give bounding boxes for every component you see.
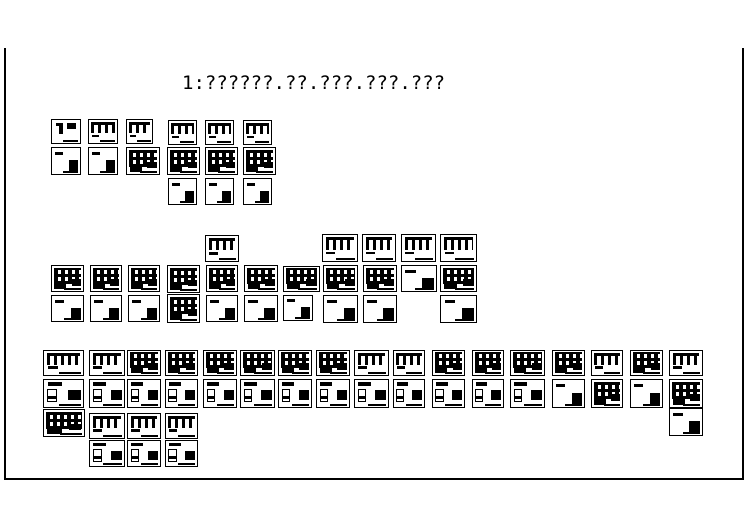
thumb-mark — [209, 183, 217, 186]
thumb-mark — [207, 368, 219, 373]
thumb-mark — [93, 382, 106, 386]
thumb-mark — [422, 278, 433, 288]
thumb-mark — [492, 363, 501, 369]
sheet-thumbnail[interactable] — [126, 147, 160, 175]
thumb-mark — [531, 390, 542, 400]
sheet-thumbnail[interactable] — [206, 295, 238, 322]
sheet-thumbnail[interactable] — [591, 350, 623, 376]
sheet-thumbnail[interactable] — [591, 379, 623, 408]
thumb-mark — [93, 284, 104, 289]
sheet-thumbnail[interactable] — [401, 265, 437, 292]
thumb-mark — [131, 284, 142, 289]
thumb-mark — [188, 280, 197, 287]
sheet-thumbnail[interactable] — [88, 119, 118, 144]
sheet-thumbnail[interactable] — [440, 265, 477, 292]
thumb-mark — [673, 399, 685, 404]
thumb-mark — [111, 451, 122, 460]
thumb-mark — [186, 363, 195, 369]
thumb-mark — [475, 368, 486, 373]
sheet-thumbnail[interactable] — [240, 379, 275, 408]
thumb-mark — [209, 284, 220, 289]
thumb-mark — [185, 451, 195, 460]
sheet-thumbnail[interactable] — [88, 147, 118, 175]
thumb-mark — [412, 390, 422, 400]
thumb-mark — [148, 390, 159, 400]
thumb-mark — [48, 382, 63, 386]
thumb-mark — [634, 384, 643, 387]
sheet-thumbnail[interactable] — [316, 379, 350, 408]
thumb-mark — [444, 237, 473, 249]
sheet-thumbnail[interactable] — [167, 147, 200, 175]
thumb-mark — [514, 389, 523, 403]
sheet-thumbnail[interactable] — [43, 379, 84, 408]
thumb-mark — [282, 368, 294, 373]
thumb-mark — [246, 166, 258, 171]
thumb-mark — [210, 300, 219, 303]
sheet-thumbnail[interactable] — [165, 379, 198, 408]
thumb-mark — [476, 382, 487, 386]
thumb-mark — [170, 284, 182, 289]
thumb-mark — [573, 363, 582, 369]
thumb-mark — [224, 390, 235, 400]
thumb-mark — [260, 191, 269, 201]
thumb-mark — [111, 390, 122, 400]
thumb-mark — [320, 368, 332, 373]
sheet-thumbnail[interactable] — [168, 178, 197, 205]
sheet-thumbnail[interactable] — [323, 295, 358, 323]
thumb-mark — [209, 238, 236, 250]
thumb-mark — [147, 162, 157, 169]
thumb-mark — [287, 299, 295, 302]
sheet-thumbnail[interactable] — [51, 147, 81, 175]
thumb-mark — [514, 382, 527, 386]
sheet-thumbnail[interactable] — [354, 350, 389, 376]
sheet-thumbnail[interactable] — [240, 350, 275, 376]
thumb-mark — [514, 368, 527, 373]
thumb-mark — [47, 353, 80, 365]
sheet-thumbnail[interactable] — [440, 234, 477, 262]
thumb-mark — [169, 382, 181, 386]
thumb-mark — [453, 363, 462, 369]
thumb-mark — [131, 429, 139, 431]
cad-drawing-canvas[interactable]: 1:??????.??.???.???.??? — [0, 0, 749, 530]
sheet-thumbnail[interactable] — [90, 295, 122, 322]
thumb-mark — [337, 390, 348, 400]
thumb-mark — [244, 382, 257, 386]
thumb-mark — [611, 394, 620, 401]
thumb-mark — [556, 384, 565, 387]
sheet-thumbnail[interactable] — [167, 294, 200, 323]
thumb-mark — [131, 389, 139, 403]
thumb-mark — [93, 449, 102, 462]
thumb-mark — [131, 368, 143, 373]
thumb-mark — [247, 136, 254, 138]
thumb-mark — [595, 366, 603, 368]
sheet-thumbnail[interactable] — [472, 379, 504, 408]
thumb-mark — [169, 429, 177, 431]
sheet-thumbnail[interactable] — [51, 295, 84, 322]
sheet-thumbnail[interactable] — [51, 265, 84, 292]
thumb-mark — [690, 394, 700, 401]
thumb-mark — [326, 252, 335, 255]
sheet-thumbnail[interactable] — [89, 379, 125, 408]
thumb-mark — [405, 270, 415, 273]
drawing-title: 1:??????.??.???.???.??? — [182, 72, 445, 94]
thumb-mark — [344, 308, 355, 318]
sheet-thumbnail[interactable] — [165, 413, 198, 439]
thumb-mark — [93, 429, 102, 431]
thumb-mark — [435, 368, 447, 373]
sheet-thumbnail[interactable] — [401, 234, 436, 262]
thumb-mark — [55, 152, 63, 155]
sheet-thumbnail[interactable] — [283, 266, 320, 292]
thumb-mark — [47, 428, 62, 433]
thumb-mark — [129, 122, 150, 133]
thumb-mark — [93, 416, 122, 428]
thumb-mark — [188, 162, 197, 169]
thumb-mark — [384, 279, 394, 286]
thumb-mark — [327, 284, 340, 289]
sheet-thumbnail[interactable] — [167, 265, 200, 293]
sheet-thumbnail[interactable] — [203, 379, 237, 408]
thumb-mark — [247, 183, 255, 186]
sheet-thumbnail[interactable] — [630, 350, 663, 376]
sheet-thumbnail[interactable] — [127, 350, 161, 376]
sheet-thumbnail[interactable] — [363, 295, 397, 323]
thumb-mark — [208, 166, 220, 171]
thumb-mark — [69, 160, 78, 170]
sheet-thumbnail[interactable] — [393, 350, 425, 376]
thumb-mark — [93, 443, 106, 446]
thumb-mark — [358, 382, 371, 386]
thumb-mark — [110, 279, 119, 286]
thumb-mark — [555, 368, 567, 373]
thumb-mark — [452, 390, 462, 400]
sheet-thumbnail[interactable] — [669, 408, 703, 436]
thumb-mark — [594, 399, 605, 404]
sheet-thumbnail[interactable] — [43, 409, 85, 437]
sheet-thumbnail[interactable] — [432, 350, 465, 376]
sheet-thumbnail[interactable] — [243, 120, 272, 145]
thumb-mark — [168, 449, 176, 462]
thumb-mark — [207, 389, 215, 403]
thumb-mark — [327, 300, 337, 303]
thumb-mark — [185, 390, 195, 400]
thumb-mark — [358, 366, 367, 368]
thumb-mark — [147, 308, 157, 318]
sheet-thumbnail[interactable] — [244, 295, 278, 322]
thumb-mark — [396, 389, 404, 403]
sheet-thumbnail[interactable] — [165, 440, 198, 467]
thumb-mark — [264, 162, 273, 169]
thumb-mark — [208, 123, 231, 134]
sheet-thumbnail[interactable] — [354, 379, 389, 408]
sheet-thumbnail[interactable] — [323, 265, 358, 292]
thumb-mark — [282, 389, 290, 403]
sheet-thumbnail[interactable] — [363, 265, 397, 292]
thumb-mark — [367, 284, 379, 289]
thumb-mark — [345, 279, 355, 286]
sheet-thumbnail[interactable] — [205, 235, 239, 262]
thumb-mark — [673, 413, 683, 416]
thumb-mark — [109, 308, 119, 318]
sheet-thumbnail[interactable] — [432, 379, 465, 408]
thumb-mark — [244, 368, 257, 373]
thumb-mark — [169, 443, 181, 446]
sheet-thumbnail[interactable] — [127, 413, 161, 439]
thumb-mark — [594, 353, 619, 365]
sheet-thumbnail[interactable] — [510, 350, 545, 376]
thumb-mark — [131, 443, 143, 446]
thumb-mark — [475, 389, 483, 403]
thumb-mark — [130, 135, 137, 137]
thumb-mark — [188, 309, 197, 316]
thumb-mark — [69, 424, 81, 431]
sheet-thumbnail[interactable] — [669, 350, 703, 376]
thumb-mark — [168, 416, 194, 428]
thumb-mark — [435, 389, 443, 403]
thumb-mark — [445, 252, 454, 255]
thumb-mark — [172, 136, 179, 138]
thumb-mark — [244, 389, 253, 403]
thumb-mark — [326, 237, 355, 249]
sheet-thumbnail[interactable] — [393, 379, 425, 408]
thumb-mark — [320, 382, 332, 386]
thumb-mark — [262, 363, 272, 369]
sheet-thumbnail[interactable] — [43, 350, 84, 376]
thumb-mark — [106, 160, 115, 170]
thumb-mark — [225, 308, 235, 318]
thumb-mark — [633, 368, 645, 373]
thumb-mark — [59, 123, 62, 134]
thumb-mark — [131, 416, 158, 428]
thumb-mark — [306, 279, 317, 285]
thumb-mark — [246, 123, 269, 134]
thumb-mark — [248, 284, 260, 289]
thumb-mark — [436, 382, 448, 386]
thumb-mark — [532, 363, 542, 369]
thumb-mark — [366, 252, 374, 255]
thumb-mark — [93, 366, 102, 368]
thumb-mark — [445, 300, 456, 303]
thumb-mark — [54, 284, 66, 289]
sheet-thumbnail[interactable] — [206, 265, 238, 292]
thumb-mark — [71, 308, 81, 318]
thumb-mark — [383, 308, 394, 318]
thumb-mark — [170, 314, 182, 319]
sheet-thumbnail[interactable] — [440, 295, 477, 323]
thumb-mark — [148, 279, 157, 286]
sheet-thumbnail[interactable] — [278, 379, 312, 408]
thumb-mark — [172, 183, 180, 186]
thumb-mark — [132, 300, 141, 303]
thumb-mark — [462, 308, 474, 318]
sheet-thumbnail[interactable] — [126, 119, 153, 144]
thumb-mark — [48, 366, 58, 368]
thumb-mark — [287, 284, 300, 289]
thumb-mark — [130, 166, 142, 171]
sheet-thumbnail[interactable] — [89, 350, 125, 376]
thumb-mark — [366, 237, 393, 249]
thumb-mark — [92, 135, 99, 137]
thumb-mark — [375, 390, 386, 400]
thumb-mark — [264, 308, 275, 318]
thumb-mark — [396, 353, 421, 365]
thumb-mark — [673, 366, 681, 368]
thumb-mark — [148, 451, 159, 460]
sheet-thumbnail[interactable] — [322, 234, 358, 262]
thumb-mark — [209, 136, 216, 138]
sheet-thumbnail[interactable] — [165, 350, 198, 376]
sheet-thumbnail[interactable] — [89, 413, 125, 439]
sheet-thumbnail[interactable] — [127, 440, 161, 467]
sheet-thumbnail[interactable] — [552, 350, 585, 376]
sheet-thumbnail[interactable] — [128, 265, 160, 292]
thumb-mark — [92, 152, 100, 155]
thumb-mark — [226, 279, 235, 286]
thumb-mark — [405, 237, 433, 249]
thumb-mark — [651, 363, 660, 369]
thumb-mark — [689, 421, 700, 431]
sheet-thumbnail[interactable] — [128, 295, 160, 322]
sheet-thumbnail[interactable] — [669, 379, 703, 408]
thumb-mark — [261, 390, 272, 400]
sheet-thumbnail[interactable] — [203, 350, 237, 376]
thumb-mark — [358, 389, 367, 403]
thumb-mark — [68, 390, 81, 400]
thumb-mark — [131, 382, 143, 386]
thumb-mark — [47, 389, 57, 403]
thumb-mark — [93, 389, 102, 403]
thumb-mark — [650, 393, 660, 404]
sheet-thumbnail[interactable] — [168, 120, 197, 145]
thumb-mark — [248, 300, 258, 303]
thumb-mark — [367, 300, 377, 303]
thumb-mark — [673, 353, 700, 365]
sheet-thumbnail[interactable] — [127, 379, 161, 408]
sheet-thumbnail[interactable] — [552, 379, 585, 408]
thumb-mark — [168, 368, 180, 373]
thumb-mark — [168, 389, 176, 403]
sheet-thumbnail[interactable] — [244, 265, 278, 292]
sheet-thumbnail[interactable] — [283, 295, 313, 321]
thumb-mark — [207, 382, 219, 386]
thumb-mark — [94, 300, 103, 303]
thumb-mark — [572, 393, 582, 404]
thumb-mark — [463, 279, 474, 286]
thumb-mark — [209, 252, 217, 255]
sheet-thumbnail[interactable] — [90, 265, 122, 292]
sheet-thumbnail[interactable] — [205, 120, 234, 145]
thumb-mark — [72, 279, 81, 286]
thumb-mark — [67, 123, 76, 129]
thumb-mark — [405, 252, 414, 255]
thumb-mark — [148, 363, 158, 369]
sheet-thumbnail[interactable] — [362, 234, 396, 262]
thumb-mark — [222, 191, 231, 201]
thumb-mark — [224, 363, 234, 369]
thumb-mark — [444, 284, 457, 289]
thumb-mark — [358, 353, 386, 365]
sheet-thumbnail[interactable] — [205, 147, 238, 175]
thumb-mark — [93, 353, 122, 365]
sheet-thumbnail[interactable] — [630, 379, 663, 408]
sheet-thumbnail[interactable] — [205, 178, 234, 205]
sheet-thumbnail[interactable] — [89, 440, 125, 467]
sheet-thumbnail[interactable] — [316, 350, 350, 376]
sheet-thumbnail[interactable] — [51, 119, 81, 144]
thumb-mark — [282, 382, 294, 386]
thumb-mark — [265, 279, 275, 286]
thumb-mark — [491, 390, 501, 400]
thumb-mark — [320, 389, 328, 403]
sheet-thumbnail[interactable] — [278, 350, 312, 376]
sheet-thumbnail[interactable] — [510, 379, 545, 408]
sheet-thumbnail[interactable] — [243, 147, 276, 175]
thumb-mark — [299, 363, 309, 369]
thumb-mark — [185, 191, 194, 201]
thumb-mark — [397, 366, 405, 368]
thumb-mark — [171, 123, 194, 134]
thumb-mark — [131, 449, 139, 462]
thumb-mark — [299, 390, 310, 400]
thumb-mark — [91, 122, 115, 133]
sheet-thumbnail[interactable] — [243, 178, 272, 205]
thumb-mark — [226, 162, 235, 169]
sheet-thumbnail[interactable] — [472, 350, 504, 376]
thumb-mark — [170, 166, 182, 171]
thumb-mark — [337, 363, 347, 369]
thumb-mark — [301, 307, 310, 317]
thumb-mark — [397, 382, 408, 386]
thumb-mark — [55, 300, 64, 303]
